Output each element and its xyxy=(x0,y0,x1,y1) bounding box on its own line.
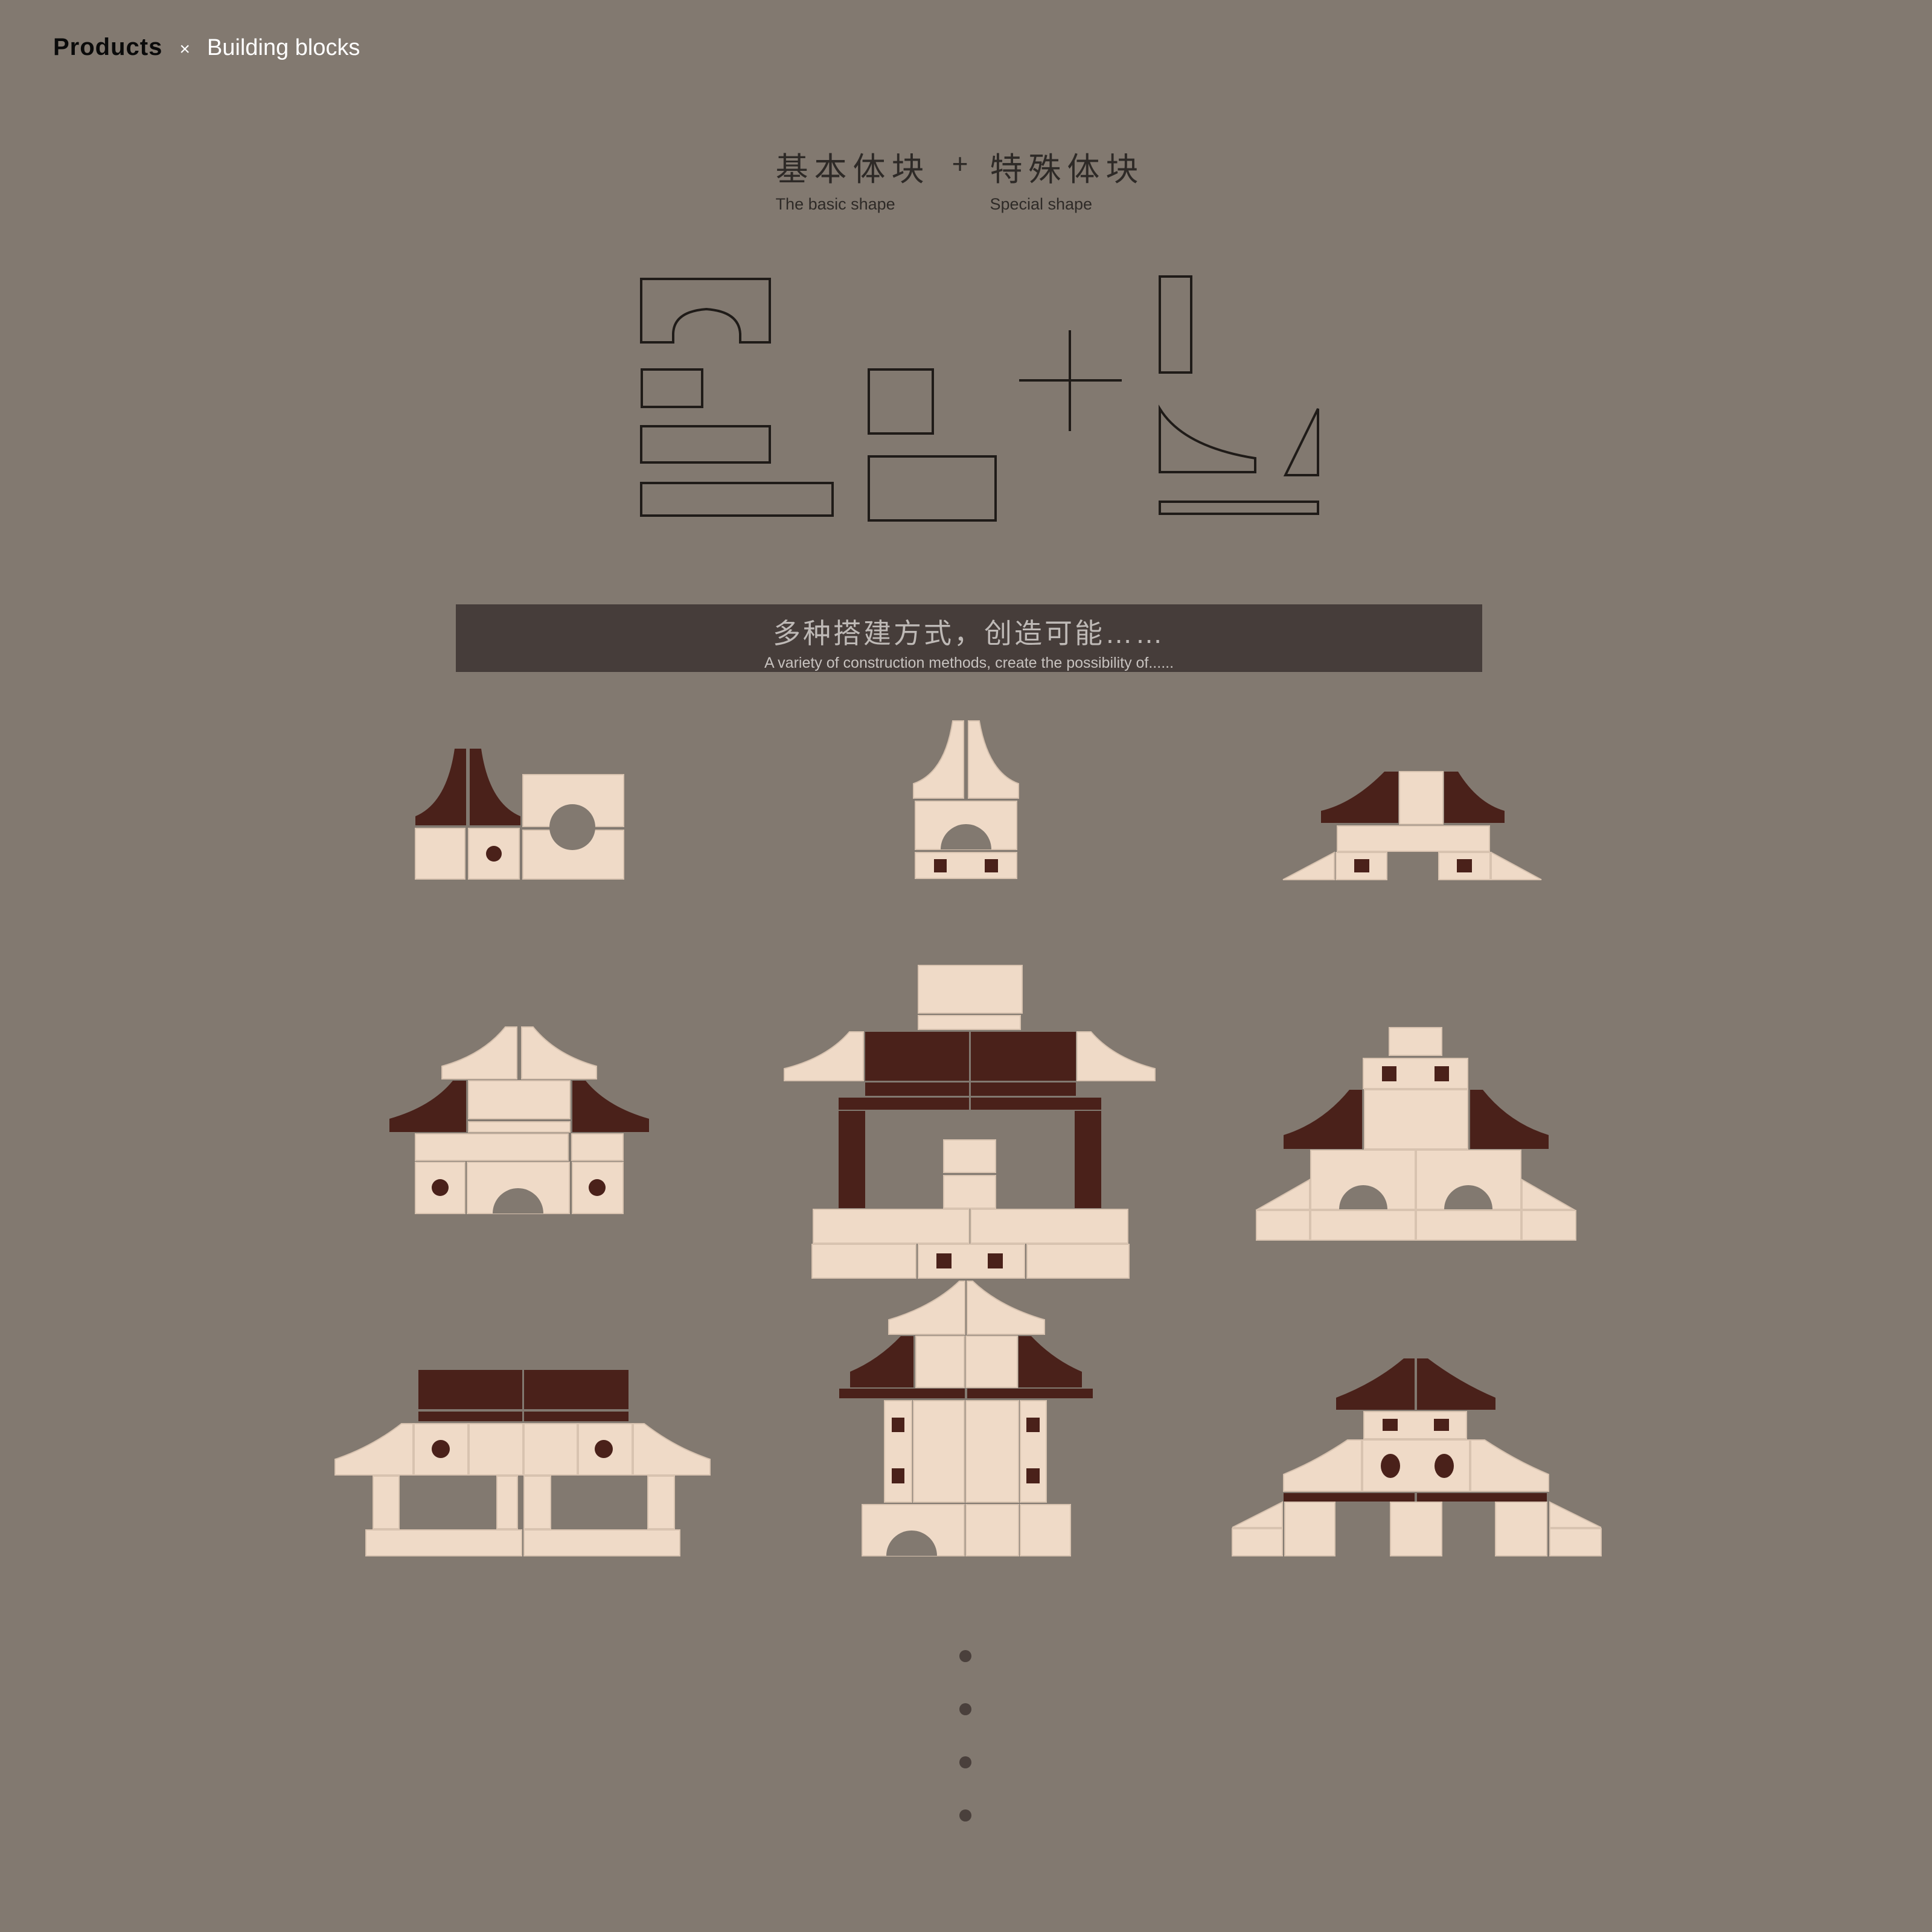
lower-roof-right xyxy=(572,1081,649,1132)
beam xyxy=(967,1389,1093,1398)
shape-formula-title: 基本体块 The basic shape + 特殊体块 Special shap… xyxy=(776,142,1145,214)
round-window xyxy=(595,1440,613,1458)
roof-slab xyxy=(524,1370,629,1409)
attic-block xyxy=(1363,1058,1468,1089)
foot-triangle-right xyxy=(1522,1180,1573,1209)
block xyxy=(469,1081,570,1119)
strip xyxy=(469,1122,570,1132)
lower-roof-left xyxy=(389,1081,466,1132)
plus-icon xyxy=(1019,330,1122,431)
roof-right xyxy=(470,749,520,825)
foot-triangle-left xyxy=(1258,1180,1310,1209)
structure-bell-house xyxy=(414,746,626,881)
wall-column xyxy=(884,1401,912,1502)
column xyxy=(524,1476,551,1529)
category-label: Building blocks xyxy=(207,35,360,61)
roof-wing-left xyxy=(784,1032,863,1081)
top-roof-right xyxy=(522,1027,597,1079)
rectangle-outline xyxy=(641,426,770,462)
block xyxy=(524,1424,577,1475)
structure-gate-tower xyxy=(836,1280,1096,1557)
roof-right xyxy=(1444,772,1505,823)
window xyxy=(892,1418,904,1432)
banner-text-cn: 多种搭建方式，创造可能…… xyxy=(456,604,1482,651)
square-outline xyxy=(869,369,933,433)
window xyxy=(1434,1419,1449,1431)
column xyxy=(648,1476,674,1529)
window xyxy=(1026,1418,1040,1432)
brand-label: Products xyxy=(53,34,162,61)
window xyxy=(1382,1066,1396,1081)
roof-strip xyxy=(865,1083,969,1096)
round-hole xyxy=(549,804,595,850)
structure-double-arch-hall xyxy=(1255,1026,1578,1242)
arch-block-outline xyxy=(641,279,770,342)
roof-wing-right xyxy=(1470,1090,1549,1149)
structure-pavilion xyxy=(1281,770,1543,881)
multiply-separator: × xyxy=(179,39,190,60)
cove-wedge-outline xyxy=(1160,409,1255,472)
roof-wing-left xyxy=(850,1336,913,1387)
roof-strip xyxy=(971,1083,1076,1096)
block xyxy=(916,1336,964,1387)
foot-triangle-right xyxy=(1491,852,1541,880)
corner-block xyxy=(1232,1529,1282,1556)
special-shape-title-en: Special shape xyxy=(990,195,1144,214)
top-block xyxy=(1389,1028,1442,1055)
roof-slab xyxy=(865,1032,969,1081)
base-block xyxy=(812,1244,916,1278)
beam xyxy=(1337,826,1489,851)
pillar xyxy=(1075,1111,1101,1208)
roof-wing-right xyxy=(1471,1440,1549,1491)
base-block xyxy=(366,1530,522,1556)
base-block xyxy=(1020,1505,1070,1556)
base-block xyxy=(1027,1244,1129,1278)
base-block xyxy=(1522,1211,1576,1240)
round-window xyxy=(432,1440,450,1458)
ellipsis-dots xyxy=(959,1650,971,1822)
special-shape-title: 特殊体块 Special shape xyxy=(990,142,1144,214)
base-block xyxy=(1311,1211,1415,1240)
base-block xyxy=(971,1209,1128,1243)
small-square-outline xyxy=(642,369,702,407)
base-block xyxy=(1416,1211,1521,1240)
round-window xyxy=(432,1179,449,1196)
pillar xyxy=(839,1111,865,1208)
base-block xyxy=(1256,1211,1310,1240)
roof-wing-left xyxy=(1284,1090,1362,1149)
thin-triangle-outline xyxy=(1285,409,1318,475)
structure-three-pillar-pavilion xyxy=(1230,1355,1603,1557)
block-outline-diagram xyxy=(628,266,1328,531)
beam xyxy=(415,1134,568,1160)
structure-arch-tower xyxy=(912,720,1020,880)
window xyxy=(934,859,947,872)
foot-triangle-right xyxy=(1550,1502,1601,1527)
altar-block xyxy=(944,1140,996,1172)
base-block xyxy=(524,1530,680,1556)
top-roof-left xyxy=(889,1281,965,1334)
banner-text-en: A variety of construction methods, creat… xyxy=(456,654,1482,672)
window xyxy=(892,1468,904,1483)
pillar xyxy=(1390,1502,1442,1556)
roof-right xyxy=(1417,1358,1495,1410)
roof-left xyxy=(415,749,466,825)
chimney-column xyxy=(1399,772,1443,824)
wall-column xyxy=(966,1401,1019,1502)
round-window xyxy=(486,846,502,862)
top-block xyxy=(918,965,1022,1013)
roof-strip xyxy=(418,1412,522,1421)
ellipsis-dot xyxy=(959,1756,971,1768)
base-block xyxy=(966,1505,1019,1556)
pillar xyxy=(1285,1502,1335,1556)
block xyxy=(966,1336,1017,1387)
ellipsis-dot xyxy=(959,1703,971,1715)
plus-sign-text: + xyxy=(952,147,968,180)
foot-triangle-left xyxy=(1283,852,1334,880)
page: Products × Building blocks 基本体块 The basi… xyxy=(0,0,1932,1932)
roof-left xyxy=(1336,1358,1415,1410)
foot-triangle-left xyxy=(1232,1502,1282,1527)
beam xyxy=(839,1098,969,1110)
beam xyxy=(1284,1493,1415,1502)
flat-plank-outline xyxy=(1160,502,1318,514)
structure-two-tier-pagoda xyxy=(388,1025,651,1215)
structure-grand-hall xyxy=(783,964,1156,1279)
basic-shape-title-cn: 基本体块 xyxy=(776,142,930,190)
round-window xyxy=(589,1179,606,1196)
window xyxy=(1457,859,1472,872)
base-block xyxy=(918,1244,1025,1278)
corner-block xyxy=(1550,1529,1601,1556)
round-window xyxy=(1435,1454,1454,1478)
attic-block xyxy=(1364,1412,1467,1439)
beam xyxy=(971,1098,1101,1110)
roof-left xyxy=(1321,772,1398,823)
pillar xyxy=(1495,1502,1547,1556)
special-shape-title-cn: 特殊体块 xyxy=(990,142,1144,190)
window xyxy=(1026,1468,1040,1483)
column xyxy=(373,1476,399,1529)
wall-column xyxy=(1020,1401,1046,1502)
altar-block xyxy=(944,1176,996,1208)
block xyxy=(469,1424,523,1475)
beam xyxy=(839,1389,965,1398)
beam xyxy=(572,1134,623,1160)
spire-left xyxy=(913,721,964,798)
window xyxy=(1354,859,1369,872)
block xyxy=(415,828,465,879)
roof-strip xyxy=(524,1412,629,1421)
roof-wing-left xyxy=(335,1424,413,1475)
beam xyxy=(1417,1493,1547,1502)
roof-wing-right xyxy=(633,1424,710,1475)
top-roof-left xyxy=(442,1027,517,1079)
roof-wing-left xyxy=(1284,1440,1361,1491)
spire-right xyxy=(968,721,1019,798)
ellipsis-dot xyxy=(959,1650,971,1662)
tall-column-outline xyxy=(1160,277,1191,373)
window xyxy=(936,1253,952,1268)
long-rectangle-outline xyxy=(641,483,833,516)
top-strip xyxy=(918,1016,1020,1029)
base-block xyxy=(813,1209,969,1243)
basic-shape-title-en: The basic shape xyxy=(776,195,930,214)
basic-shape-title: 基本体块 The basic shape xyxy=(776,142,930,214)
wall-column xyxy=(913,1401,964,1502)
column xyxy=(497,1476,517,1529)
wide-rectangle-outline xyxy=(869,456,996,520)
window xyxy=(1435,1066,1449,1081)
round-window xyxy=(1381,1454,1400,1478)
top-roof-right xyxy=(967,1281,1044,1334)
block xyxy=(1364,1090,1468,1149)
roof-slab xyxy=(418,1370,522,1409)
roof-wing-right xyxy=(1077,1032,1155,1081)
base-bar xyxy=(915,852,1017,878)
roof-wing-right xyxy=(1019,1336,1082,1387)
window xyxy=(1383,1419,1398,1431)
breadcrumb: Products × Building blocks xyxy=(53,34,360,61)
structure-long-pavilion xyxy=(334,1368,711,1557)
window xyxy=(985,859,998,872)
roof-slab xyxy=(971,1032,1076,1081)
ellipsis-dot xyxy=(959,1809,971,1822)
window xyxy=(988,1253,1003,1268)
banner: 多种搭建方式，创造可能…… A variety of construction … xyxy=(456,604,1482,672)
